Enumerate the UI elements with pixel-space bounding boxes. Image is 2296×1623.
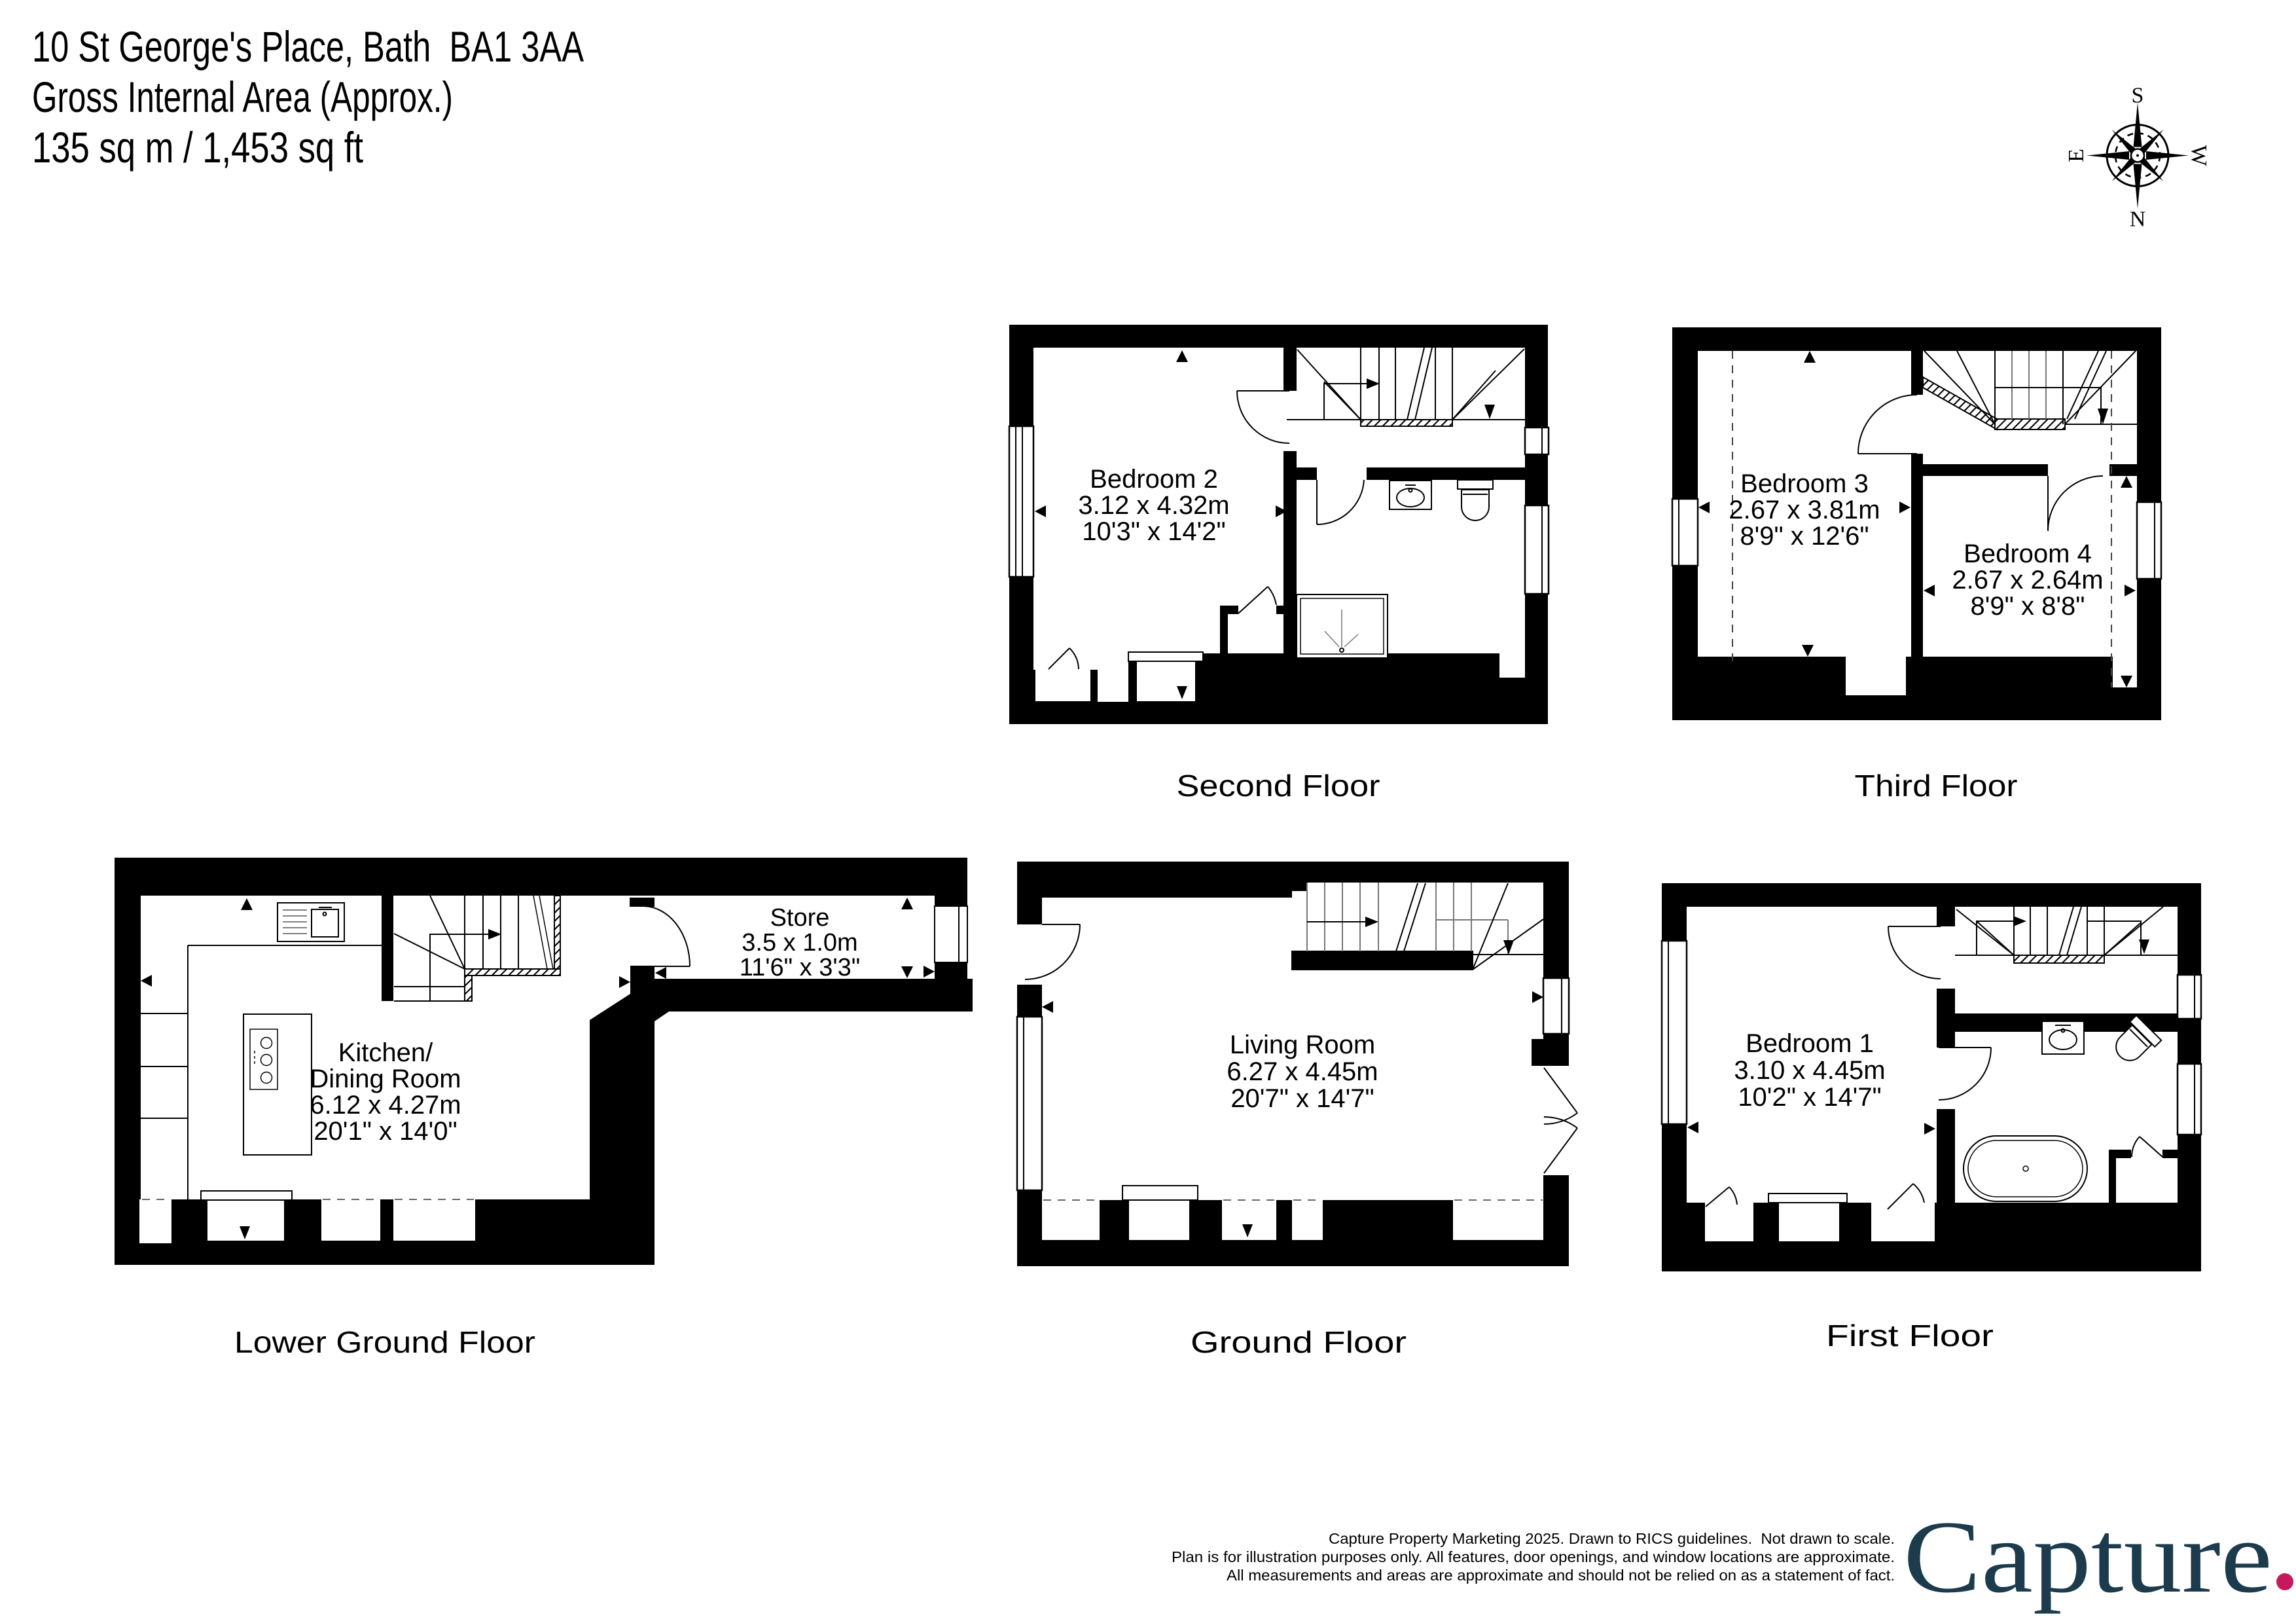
- svg-text:Bedroom 3: Bedroom 3: [1740, 469, 1869, 498]
- svg-text:20'1" x 14'0": 20'1" x 14'0": [314, 1117, 457, 1146]
- svg-text:11'6" x 3'3": 11'6" x 3'3": [740, 954, 860, 981]
- svg-text:Ground Floor: Ground Floor: [1191, 1325, 1407, 1359]
- svg-text:First Floor: First Floor: [1826, 1319, 1994, 1353]
- svg-text:3.5 x 1.0m: 3.5 x 1.0m: [742, 929, 857, 957]
- svg-text:6.12 x 4.27m: 6.12 x 4.27m: [310, 1091, 461, 1120]
- svg-text:10'2" x 14'7": 10'2" x 14'7": [1738, 1083, 1881, 1112]
- svg-text:135 sq m / 1,453 sq ft: 135 sq m / 1,453 sq ft: [32, 123, 363, 172]
- svg-text:Store: Store: [770, 904, 830, 932]
- svg-text:Capture: Capture: [1903, 1500, 2272, 1614]
- svg-text:Plan is for illustration purpo: Plan is for illustration purposes only. …: [1172, 1548, 1895, 1565]
- svg-text:S: S: [2132, 84, 2144, 108]
- svg-text:Gross Internal Area (Approx.): Gross Internal Area (Approx.): [32, 73, 453, 121]
- svg-text:Lower Ground Floor: Lower Ground Floor: [234, 1325, 535, 1359]
- svg-text:Bedroom 4: Bedroom 4: [1964, 539, 2092, 568]
- svg-text:10'3" x 14'2": 10'3" x 14'2": [1082, 517, 1225, 546]
- svg-text:6.27 x 4.45m: 6.27 x 4.45m: [1227, 1057, 1378, 1086]
- svg-text:2.67 x 3.81m: 2.67 x 3.81m: [1729, 496, 1880, 524]
- svg-text:Second Floor: Second Floor: [1177, 769, 1380, 803]
- svg-text:2.67 x 2.64m: 2.67 x 2.64m: [1952, 566, 2103, 594]
- svg-text:Living Room: Living Room: [1230, 1030, 1375, 1059]
- svg-text:3.12 x 4.32m: 3.12 x 4.32m: [1078, 491, 1229, 520]
- svg-text:W: W: [2187, 145, 2211, 166]
- svg-text:20'7" x 14'7": 20'7" x 14'7": [1230, 1084, 1374, 1113]
- svg-text:Third Floor: Third Floor: [1855, 769, 2018, 803]
- svg-text:E: E: [2064, 149, 2089, 162]
- svg-text:N: N: [2130, 208, 2146, 232]
- svg-text:Dining Room: Dining Room: [310, 1065, 461, 1093]
- svg-text:10 St George's Place, Bath BA: 10 St George's Place, Bath BA1 3AA: [32, 22, 584, 71]
- svg-text:Capture Property Marketing 202: Capture Property Marketing 2025. Drawn t…: [1329, 1530, 1895, 1547]
- svg-text:8'9" x 8'8": 8'9" x 8'8": [1971, 592, 2085, 621]
- svg-text:Bedroom 2: Bedroom 2: [1090, 465, 1218, 494]
- svg-text:Kitchen/: Kitchen/: [338, 1038, 433, 1067]
- svg-text:8'9" x 12'6": 8'9" x 12'6": [1740, 522, 1869, 551]
- svg-text:3.10 x 4.45m: 3.10 x 4.45m: [1734, 1056, 1885, 1085]
- svg-text:Bedroom 1: Bedroom 1: [1746, 1029, 1874, 1058]
- svg-text:All measurements and areas are: All measurements and areas are approxima…: [1227, 1567, 1895, 1584]
